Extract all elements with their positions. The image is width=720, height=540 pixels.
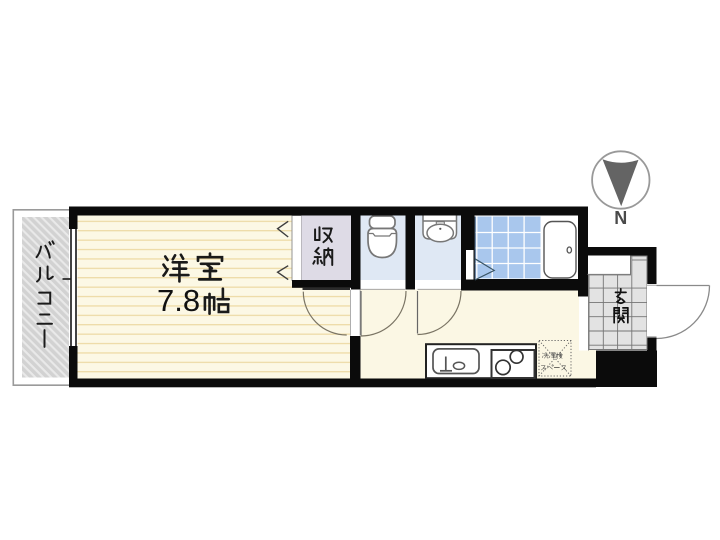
svg-text:7.8: 7.8	[157, 283, 200, 318]
svg-text:N: N	[614, 208, 627, 228]
